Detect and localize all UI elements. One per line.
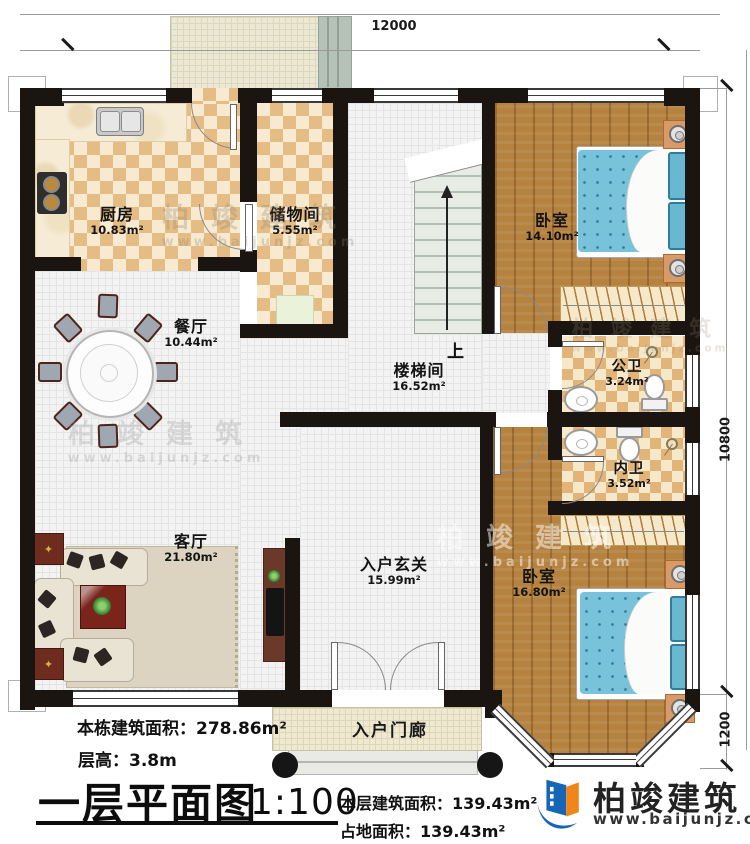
sink-basin	[100, 111, 120, 132]
window	[374, 88, 458, 103]
room-label-kitchen: 厨房 10.83m²	[62, 206, 172, 236]
land-area-line: 占地面积：139.43m²	[340, 818, 505, 842]
window	[685, 355, 700, 407]
wall-segment	[547, 412, 700, 427]
bath-sink	[564, 386, 598, 413]
land-area-value: 139.43m²	[420, 822, 505, 841]
dim-line-top-outer	[20, 14, 720, 15]
shower-head	[666, 438, 678, 450]
wall-segment	[166, 88, 192, 103]
wall-segment	[458, 88, 528, 103]
dim-label-right-upper: 10800	[719, 412, 734, 468]
brand-website: www.baijunjz.com	[593, 810, 750, 828]
room-label-living: 客厅 21.80m²	[151, 533, 231, 563]
dim-tick	[720, 79, 733, 92]
wall-segment	[548, 321, 562, 347]
wall-segment	[548, 427, 562, 460]
room-label-stairwell: 楼梯间 16.52m²	[379, 362, 459, 392]
floor-plan-page: 12000 10800 1200 上	[0, 0, 750, 844]
window	[272, 88, 322, 103]
porch-step	[282, 762, 478, 775]
room-label-bedroom1: 卧室 14.10m²	[512, 212, 592, 242]
tv	[266, 588, 284, 636]
wall-segment	[280, 412, 496, 427]
sink-basin	[121, 111, 141, 132]
toilet-bowl	[619, 437, 640, 462]
stair-direction-line	[446, 198, 448, 330]
burner	[43, 194, 60, 211]
wardrobe	[560, 286, 687, 324]
floor-area-value: 139.43m²	[452, 794, 537, 813]
floor-area-line: 本层建筑面积：139.43m²	[340, 790, 537, 814]
shower-head	[646, 346, 658, 358]
wall-segment	[548, 321, 700, 335]
window	[62, 88, 166, 103]
room-label-private-bath: 内卫 3.52m²	[589, 462, 669, 490]
terrace-drain-line	[337, 17, 339, 87]
dim-ext	[700, 88, 726, 89]
building-area-label: 本栋建筑面积：	[77, 719, 196, 739]
plant	[93, 597, 111, 615]
window	[685, 595, 700, 689]
bay-window-front	[554, 753, 636, 767]
room-label-foyer: 入户玄关 15.99m²	[352, 556, 436, 586]
floor-area-label: 本层建筑面积：	[340, 794, 452, 813]
terrace-drain-line	[327, 17, 329, 87]
porch-column	[477, 752, 503, 778]
terrace-drain-strip	[318, 16, 352, 90]
dim-tick	[720, 685, 733, 698]
dim-tick	[657, 38, 670, 51]
title-underline	[36, 821, 338, 825]
foyer-floor	[300, 413, 480, 690]
door-leaf	[230, 104, 237, 150]
land-area-label: 占地面积：	[340, 822, 420, 841]
kitchen-terrace-doorway-floor	[190, 88, 238, 104]
stair-up-arrow	[441, 185, 453, 198]
room-label-storage: 储物间 5.55m²	[255, 206, 335, 236]
window	[528, 88, 664, 103]
building-area-value: 278.86m²	[196, 719, 287, 739]
wall-segment	[240, 103, 257, 202]
wall-segment	[285, 538, 300, 692]
dim-ext	[700, 694, 726, 695]
kitchen-sink	[96, 107, 144, 136]
plant	[268, 570, 280, 582]
wall-segment	[240, 324, 348, 338]
window	[73, 690, 238, 707]
brand-logo-svg	[532, 774, 586, 834]
dim-tick	[61, 38, 74, 51]
entry-door-leaf	[331, 642, 338, 690]
room-label-public-bath: 公卫 3.24m²	[587, 360, 667, 388]
wall-segment	[20, 690, 73, 707]
door-leaf	[562, 341, 604, 347]
door-leaf	[494, 286, 501, 334]
dining-table-center	[100, 364, 118, 382]
dim-line-top	[20, 50, 700, 51]
wall-segment	[198, 257, 257, 271]
wall-segment	[548, 390, 562, 413]
room-label-bedroom2: 卧室 16.80m²	[499, 568, 579, 598]
floor-height-line: 层高：3.8m	[78, 746, 177, 771]
wardrobe	[560, 515, 687, 546]
building-area-line: 本栋建筑面积：278.86m²	[77, 714, 287, 739]
brand-logo-icon	[532, 774, 586, 834]
dining-chair	[98, 424, 119, 449]
bath-sink	[564, 429, 598, 456]
dim-ext	[700, 768, 726, 769]
door-leaf	[245, 204, 253, 252]
wall-segment	[238, 690, 332, 707]
window	[685, 443, 700, 495]
dining-chair	[38, 362, 62, 382]
porch-column	[272, 752, 298, 778]
entry-door-leaf	[438, 642, 445, 690]
wall-segment	[480, 427, 493, 692]
room-label-dining: 餐厅 10.44m²	[151, 318, 231, 348]
dim-label-right-lower: 1200	[719, 708, 734, 752]
dining-chair	[98, 294, 119, 319]
porch-label: 入户门廊	[352, 716, 428, 741]
wall-segment	[33, 257, 81, 271]
wall-segment	[333, 103, 348, 338]
wall-segment	[238, 88, 272, 103]
dim-tick	[720, 759, 733, 772]
floor-height-value: 3.8m	[129, 751, 177, 771]
wall-segment	[322, 88, 374, 103]
hall-floor	[482, 333, 550, 413]
door-leaf	[494, 427, 501, 475]
stairs-up-label: 上	[447, 337, 464, 362]
dim-line-right-outer	[746, 50, 747, 750]
side-table: ✦	[33, 533, 64, 565]
dim-label-top: 12000	[356, 19, 432, 34]
dining-chair	[154, 362, 178, 382]
wall-left	[20, 88, 35, 710]
floor-height-label: 层高：	[78, 751, 129, 771]
wall-segment	[548, 501, 700, 515]
side-table: ✦	[33, 648, 64, 680]
burner	[43, 176, 60, 193]
